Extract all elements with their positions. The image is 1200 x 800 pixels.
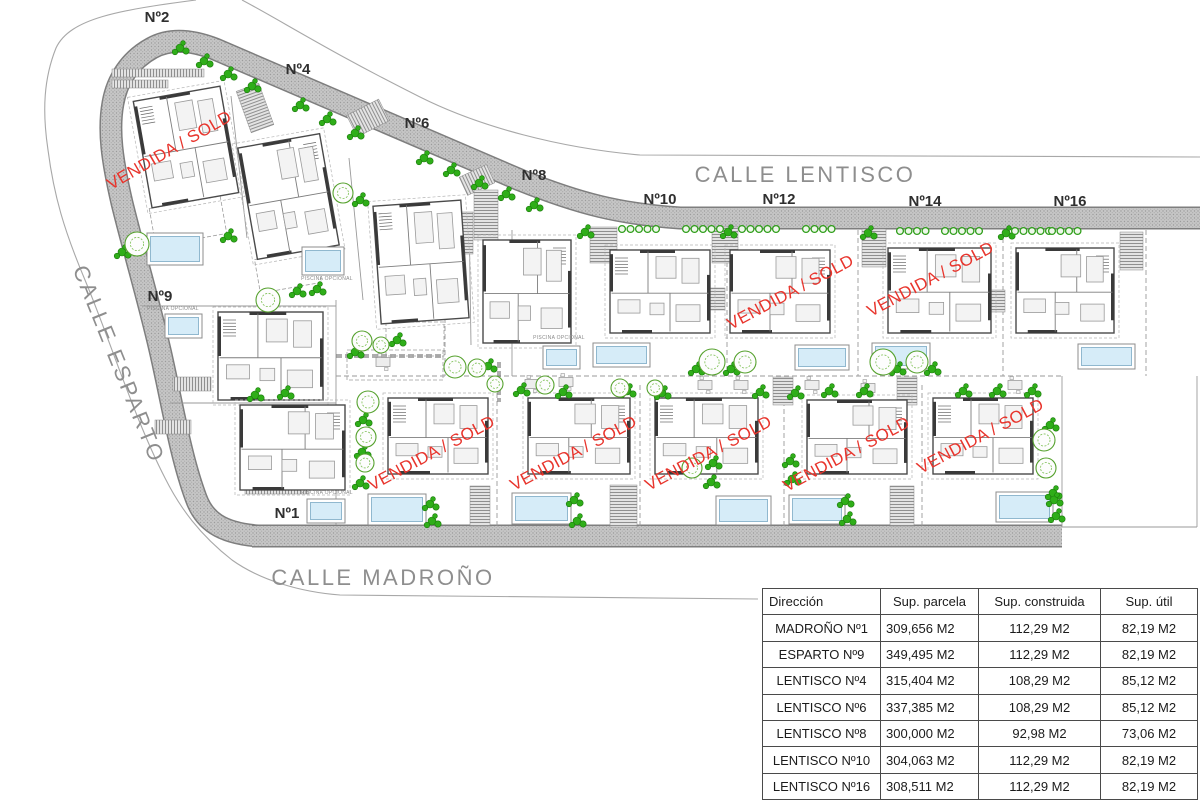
- shrub: [811, 226, 818, 233]
- shrub: [820, 226, 827, 233]
- shrub: [1066, 228, 1073, 235]
- tree: [352, 331, 372, 351]
- piscina-opcional-label: PISCINA OPCIONAL: [147, 306, 199, 312]
- furniture: [999, 448, 1023, 463]
- surface-table: DirecciónSup. parcelaSup. construidaSup.…: [762, 588, 1198, 800]
- bush: [964, 384, 969, 389]
- bush: [578, 514, 583, 519]
- pool-m2: [512, 493, 571, 524]
- table-cell: 82,19 M2: [1101, 773, 1198, 799]
- bush: [796, 386, 801, 391]
- table-cell: 337,385 M2: [881, 694, 979, 720]
- bush: [1033, 384, 1038, 389]
- tree-canopy: [870, 349, 896, 375]
- shrub: [1074, 228, 1081, 235]
- shrub: [942, 228, 949, 235]
- bush: [400, 340, 406, 346]
- shrub-row: [1012, 228, 1053, 235]
- patio-table: [805, 381, 819, 390]
- pool-water: [547, 350, 577, 366]
- table-header-row: DirecciónSup. parcelaSup. construidaSup.…: [763, 589, 1198, 615]
- tree: [870, 349, 896, 375]
- bush: [837, 502, 843, 508]
- bush: [900, 369, 906, 375]
- bush: [231, 74, 237, 80]
- bush: [301, 98, 306, 103]
- bush: [231, 236, 237, 242]
- bush: [787, 394, 793, 400]
- furniture: [1055, 302, 1069, 314]
- table-cell: 112,29 M2: [979, 641, 1101, 667]
- bush: [352, 201, 358, 207]
- bush: [425, 151, 430, 156]
- bush: [1055, 493, 1060, 498]
- tree-canopy: [647, 380, 663, 396]
- bush: [288, 393, 294, 399]
- bush: [352, 484, 358, 490]
- calle-lentisco-label: CALLE LENTISCO: [695, 162, 916, 187]
- shrub: [897, 228, 904, 235]
- bush: [172, 49, 178, 55]
- tree-canopy: [356, 427, 376, 447]
- bush: [588, 232, 594, 238]
- patio-chair: [385, 368, 389, 371]
- bush: [566, 501, 572, 507]
- wall-accent: [730, 254, 733, 291]
- wall-accent: [559, 398, 595, 401]
- tree: [611, 379, 629, 397]
- furniture: [663, 444, 686, 456]
- bush: [577, 500, 583, 506]
- furniture: [288, 412, 309, 434]
- shrub: [619, 226, 626, 233]
- lot-n2-label: Nº2: [145, 9, 170, 26]
- lot-n16-label: Nº16: [1054, 193, 1087, 210]
- shrub: [683, 226, 690, 233]
- pool-m4: [789, 495, 845, 524]
- bush: [665, 393, 671, 399]
- bush: [577, 233, 583, 239]
- pool-water: [151, 237, 200, 262]
- furniture: [413, 278, 426, 295]
- bush: [298, 284, 303, 289]
- furniture: [256, 211, 277, 232]
- furniture: [266, 319, 287, 342]
- bush: [361, 193, 366, 198]
- patio-chair: [863, 380, 867, 383]
- bush: [253, 79, 258, 84]
- bush: [300, 291, 306, 297]
- tree: [536, 376, 554, 394]
- bush: [846, 494, 851, 499]
- wall-accent: [640, 250, 675, 253]
- wall-accent: [320, 338, 323, 386]
- bush: [821, 392, 827, 398]
- bush: [255, 86, 261, 92]
- patio-chair: [707, 391, 711, 394]
- bush: [482, 183, 488, 189]
- patio-chair: [534, 390, 538, 393]
- tree: [444, 356, 466, 378]
- bush: [1051, 418, 1056, 423]
- furniture: [776, 257, 796, 279]
- furniture: [796, 305, 820, 322]
- table-cell: 349,495 M2: [881, 641, 979, 667]
- bush: [555, 393, 561, 399]
- bush: [389, 341, 395, 347]
- shrub: [967, 228, 974, 235]
- tree: [468, 359, 486, 377]
- bush: [586, 225, 591, 230]
- furniture: [436, 278, 459, 303]
- bush: [356, 126, 361, 131]
- tree-canopy: [699, 349, 725, 375]
- bush: [865, 384, 870, 389]
- bush: [720, 233, 726, 239]
- furniture: [282, 459, 297, 471]
- bush: [247, 396, 253, 402]
- pool-water: [1082, 348, 1132, 366]
- table-cell: 315,404 M2: [881, 668, 979, 694]
- bush: [289, 292, 295, 298]
- bush: [507, 187, 512, 192]
- bush: [427, 158, 433, 164]
- pool-n1: [307, 499, 345, 523]
- bush: [933, 362, 938, 367]
- bush: [229, 229, 234, 234]
- shrub: [717, 226, 724, 233]
- wall-accent: [568, 271, 571, 328]
- tree: [256, 288, 280, 312]
- table-cell: 82,19 M2: [1101, 747, 1198, 773]
- bush: [569, 522, 575, 528]
- tree-canopy: [444, 356, 466, 378]
- wall-accent: [1111, 274, 1114, 321]
- bush: [537, 205, 543, 211]
- bush: [729, 225, 734, 230]
- driveway-hatch: [610, 485, 637, 527]
- table-cell: 108,29 M2: [979, 694, 1101, 720]
- patio-furniture: [734, 377, 748, 394]
- furniture: [305, 209, 329, 235]
- tree-canopy: [468, 359, 486, 377]
- furniture: [454, 448, 478, 463]
- pool-water: [372, 498, 423, 522]
- wall-accent: [963, 398, 998, 401]
- driveway-hatch: [1120, 232, 1143, 270]
- wall-accent: [272, 405, 309, 408]
- wall-accent: [888, 252, 891, 290]
- shrub: [636, 226, 643, 233]
- shrub: [1029, 228, 1036, 235]
- bush: [566, 392, 572, 398]
- wall-accent: [1030, 421, 1033, 463]
- bush: [1053, 425, 1059, 431]
- bush: [798, 393, 804, 399]
- bush: [443, 171, 449, 177]
- tree: [647, 380, 663, 396]
- bush: [416, 159, 422, 165]
- driveway-hatch: [112, 69, 204, 77]
- bush: [714, 482, 720, 488]
- table-cell: 112,29 M2: [979, 747, 1101, 773]
- bush: [871, 233, 877, 239]
- furniture: [650, 303, 664, 315]
- table-cell: 85,12 M2: [1101, 694, 1198, 720]
- table-cell: 308,511 M2: [881, 773, 979, 799]
- bush-cluster: [752, 385, 769, 399]
- shrub-row: [683, 226, 724, 233]
- driveway-hatch: [474, 190, 498, 240]
- pool-m1: [368, 494, 426, 525]
- bush: [763, 392, 769, 398]
- patio-furniture: [698, 377, 712, 394]
- house-n1: [235, 400, 350, 495]
- bush: [839, 520, 845, 526]
- house-n9: [213, 307, 328, 405]
- shrub-row: [942, 228, 983, 235]
- bush: [867, 391, 873, 397]
- bush: [935, 369, 941, 375]
- furniture: [546, 250, 561, 281]
- bush-cluster: [821, 384, 838, 398]
- furniture: [437, 213, 454, 249]
- bush: [782, 462, 788, 468]
- wall-accent: [760, 250, 795, 253]
- bush: [791, 454, 796, 459]
- tree-canopy: [256, 288, 280, 312]
- table-cell: 82,19 M2: [1101, 641, 1198, 667]
- bush: [286, 386, 291, 391]
- bush: [1024, 392, 1030, 398]
- bush: [207, 61, 213, 67]
- bush-cluster: [355, 413, 372, 427]
- bush: [355, 421, 361, 427]
- bush: [435, 521, 441, 527]
- table-row: LENTISCO Nº6337,385 M2108,29 M285,12 M2: [763, 694, 1198, 720]
- patio-chair: [807, 377, 811, 380]
- bush: [535, 198, 540, 203]
- tree-canopy: [333, 183, 353, 203]
- calle-madrono-label: CALLE MADROÑO: [271, 565, 494, 590]
- bush: [452, 163, 457, 168]
- bush: [358, 352, 364, 358]
- bush: [292, 106, 298, 112]
- bush: [1046, 501, 1052, 507]
- patio-chair: [1010, 377, 1014, 380]
- pool-water: [1000, 496, 1050, 519]
- tree-canopy: [734, 351, 756, 373]
- tree: [333, 183, 353, 203]
- bush: [869, 226, 874, 231]
- wall-accent: [837, 400, 872, 403]
- table-row: ESPARTO Nº9349,495 M2112,29 M282,19 M2: [763, 641, 1198, 667]
- bush: [580, 521, 586, 527]
- bush: [229, 67, 234, 72]
- tree-canopy: [487, 376, 503, 392]
- bush-cluster: [352, 193, 369, 207]
- bush: [433, 514, 438, 519]
- wall-accent: [253, 487, 285, 490]
- shrub: [764, 226, 771, 233]
- shrub: [803, 226, 810, 233]
- lot-n12-label: Nº12: [763, 191, 796, 208]
- piscina-opcional-label: PISCINA OPCIONAL: [301, 276, 353, 282]
- pool-water: [306, 251, 341, 272]
- house-n4: [232, 128, 345, 265]
- pool-water: [720, 500, 768, 522]
- patio-table: [376, 358, 390, 367]
- pool-water: [311, 503, 342, 520]
- shrub: [653, 226, 660, 233]
- shrub: [627, 226, 634, 233]
- bush: [366, 420, 372, 426]
- bush: [1059, 516, 1065, 522]
- bush: [363, 200, 369, 206]
- tree-canopy: [611, 379, 629, 397]
- patio-chair: [561, 374, 565, 377]
- wall-accent: [240, 409, 243, 447]
- furniture: [490, 302, 509, 318]
- patio-table: [734, 381, 748, 390]
- furniture: [702, 404, 723, 424]
- wall-accent: [494, 340, 520, 343]
- furniture: [575, 404, 595, 424]
- furniture: [676, 305, 700, 322]
- furniture: [618, 300, 640, 313]
- driveway-hatch: [773, 377, 793, 405]
- furniture: [385, 275, 406, 295]
- bush: [330, 119, 336, 125]
- bush: [220, 75, 226, 81]
- shrub: [1057, 228, 1064, 235]
- bush: [850, 519, 856, 525]
- bush: [431, 497, 436, 502]
- shrub: [1020, 228, 1027, 235]
- shrub: [773, 226, 780, 233]
- bush: [924, 370, 930, 376]
- table-cell: ESPARTO Nº9: [763, 641, 881, 667]
- shrub: [914, 228, 921, 235]
- bush: [860, 234, 866, 240]
- bush-cluster: [577, 225, 594, 239]
- bush: [509, 194, 515, 200]
- bush: [328, 112, 333, 117]
- table-cell: 92,98 M2: [979, 720, 1101, 746]
- bush: [1057, 509, 1062, 514]
- piscina-opcional-label: PISCINA OPCIONAL: [533, 335, 585, 341]
- patio-furniture: [805, 377, 819, 394]
- bush: [524, 390, 530, 396]
- bush: [358, 133, 364, 139]
- furniture: [853, 406, 873, 425]
- table-cell: 85,12 M2: [1101, 668, 1198, 694]
- bush: [998, 384, 1003, 389]
- tree-canopy: [352, 331, 372, 351]
- bush: [712, 475, 717, 480]
- table-cell: LENTISCO Nº4: [763, 668, 881, 694]
- wall-accent: [945, 471, 975, 474]
- shrub: [922, 228, 929, 235]
- bush: [1054, 486, 1059, 491]
- bush: [205, 54, 210, 59]
- table-cell: 108,29 M2: [979, 668, 1101, 694]
- table-cell: 112,29 M2: [979, 773, 1101, 799]
- shrub: [739, 226, 746, 233]
- table-row: LENTISCO Nº10304,063 M2112,29 M282,19 M2: [763, 747, 1198, 773]
- pool-water: [597, 347, 647, 364]
- pool-n12: [795, 345, 849, 370]
- bush: [491, 366, 497, 372]
- tree: [1033, 429, 1055, 451]
- bush: [1057, 500, 1063, 506]
- table-header-cell: Sup. parcela: [881, 589, 979, 615]
- bush: [1007, 226, 1012, 231]
- bush-cluster: [955, 384, 972, 398]
- bush: [471, 184, 477, 190]
- furniture: [929, 302, 943, 314]
- bush: [564, 385, 569, 390]
- pool-water: [516, 497, 568, 521]
- bush: [347, 134, 353, 140]
- wall-accent: [655, 402, 658, 436]
- bush: [454, 170, 460, 176]
- furniture: [1081, 304, 1105, 321]
- lot-n1-label: Nº1: [275, 505, 300, 522]
- table-header-cell: Sup. útil: [1101, 589, 1198, 615]
- bush: [256, 388, 261, 393]
- furniture: [316, 414, 334, 440]
- pool-n9: [165, 314, 202, 338]
- tree: [373, 337, 389, 353]
- table-header-cell: Dirección: [763, 589, 881, 615]
- patio-chair: [378, 354, 382, 357]
- bush: [489, 359, 494, 364]
- bush: [183, 48, 189, 54]
- bush: [703, 483, 709, 489]
- tree: [487, 376, 503, 392]
- pool-n6: [543, 346, 580, 369]
- wall-accent: [686, 398, 722, 401]
- patio-table: [698, 381, 712, 390]
- patio-chair: [814, 391, 818, 394]
- furniture: [414, 212, 434, 244]
- tree: [1036, 458, 1056, 478]
- patio-chair: [700, 377, 704, 380]
- lot-n6-label: Nº6: [405, 115, 430, 132]
- furniture: [226, 365, 249, 379]
- bush: [848, 501, 854, 507]
- wall-accent: [528, 402, 531, 436]
- patio-chair: [1017, 391, 1021, 394]
- bush: [1000, 391, 1006, 397]
- bush: [955, 392, 961, 398]
- lot-n4-label: Nº4: [286, 61, 311, 78]
- bush: [793, 461, 799, 467]
- pool-m5: [996, 492, 1053, 522]
- wall-accent: [900, 330, 931, 333]
- furniture: [260, 368, 275, 380]
- bush: [1048, 517, 1054, 523]
- pool-n16: [1078, 344, 1135, 369]
- bush: [832, 391, 838, 397]
- pool-water: [793, 499, 842, 521]
- tree: [906, 351, 928, 373]
- shrub: [828, 226, 835, 233]
- table-row: LENTISCO Nº4315,404 M2108,29 M285,12 M2: [763, 668, 1198, 694]
- lot-n10-label: Nº10: [644, 191, 677, 208]
- table-cell: LENTISCO Nº8: [763, 720, 881, 746]
